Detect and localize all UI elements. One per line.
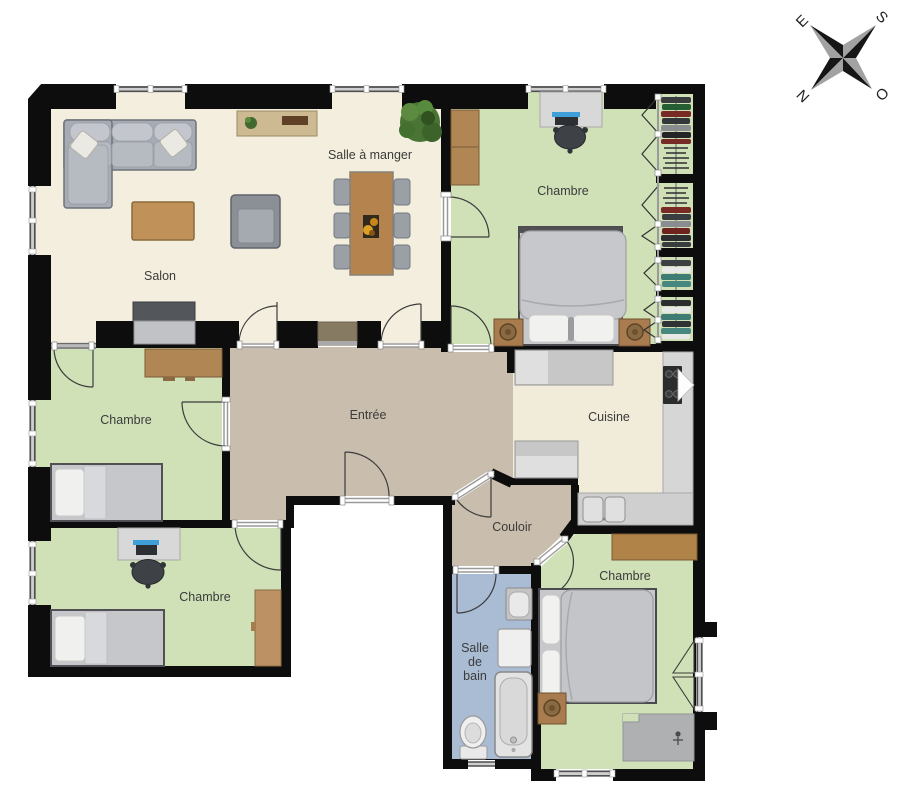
svg-text:Chambre: Chambre: [599, 569, 650, 583]
svg-text:bain: bain: [463, 669, 487, 683]
svg-text:Chambre: Chambre: [100, 413, 151, 427]
svg-text:Chambre: Chambre: [537, 184, 588, 198]
svg-text:Cuisine: Cuisine: [588, 410, 630, 424]
svg-text:Salon: Salon: [144, 269, 176, 283]
svg-text:Entrée: Entrée: [350, 408, 387, 422]
svg-text:Salle: Salle: [461, 641, 489, 655]
svg-text:de: de: [468, 655, 482, 669]
svg-text:Couloir: Couloir: [492, 520, 532, 534]
svg-text:Chambre: Chambre: [179, 590, 230, 604]
svg-text:Salle à manger: Salle à manger: [328, 148, 412, 162]
